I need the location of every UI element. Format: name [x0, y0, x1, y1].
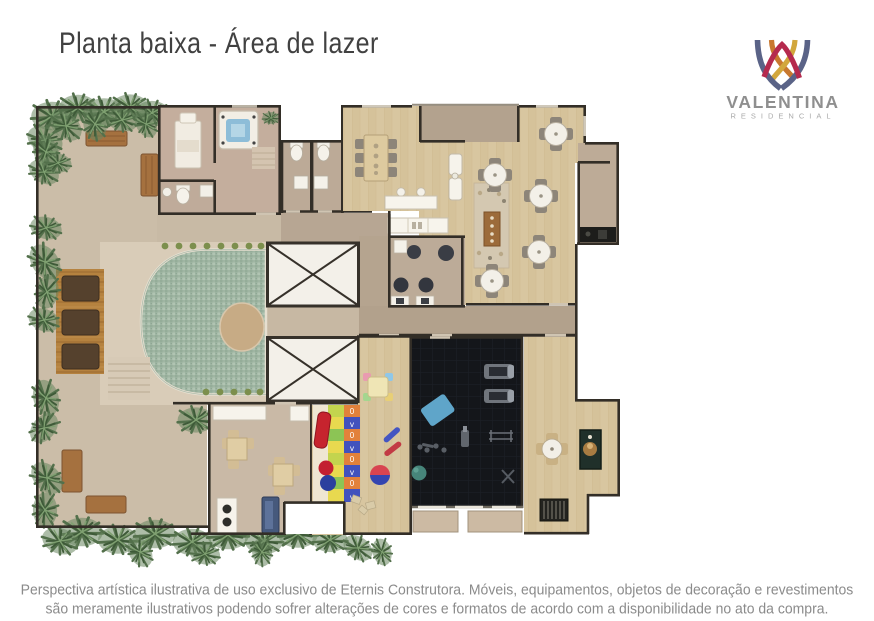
svg-text:0: 0 [350, 431, 355, 440]
svg-text:0: 0 [350, 455, 355, 464]
svg-text:v: v [350, 444, 354, 453]
svg-text:0: 0 [350, 407, 355, 416]
svg-text:v: v [350, 468, 354, 477]
svg-text:0: 0 [350, 479, 355, 488]
svg-text:v: v [350, 420, 354, 429]
